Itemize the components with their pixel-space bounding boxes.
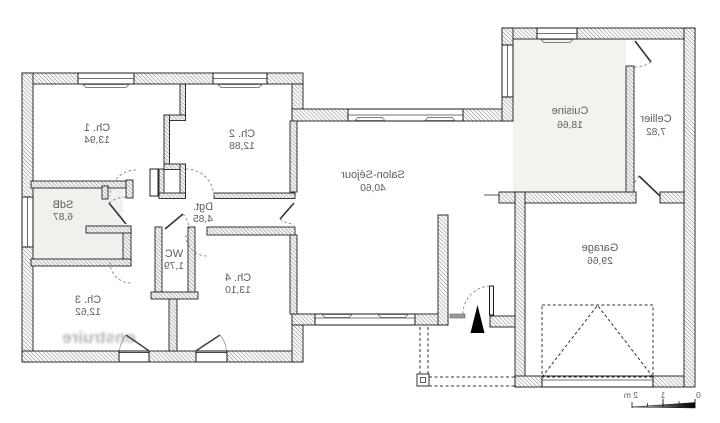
svg-text:29,66: 29,66: [587, 256, 613, 267]
svg-text:Cellier: Cellier: [640, 113, 672, 125]
svg-text:7,82: 7,82: [646, 127, 666, 138]
svg-text:onstruire: onstruire: [62, 328, 136, 347]
svg-text:Salon-Séjour: Salon-Séjour: [341, 169, 405, 181]
svg-text:1,79: 1,79: [164, 261, 184, 272]
svg-text:40,60: 40,60: [360, 183, 386, 194]
svg-text:Ch. 1: Ch. 1: [84, 122, 110, 134]
svg-text:13,10: 13,10: [225, 285, 251, 296]
svg-text:Ch. 2: Ch. 2: [229, 128, 255, 140]
svg-text:4,85: 4,85: [193, 214, 213, 225]
svg-text:Dgt.: Dgt.: [193, 201, 213, 213]
svg-text:Cuisine: Cuisine: [552, 105, 589, 117]
svg-text:WC: WC: [165, 248, 183, 260]
svg-text:1: 1: [660, 390, 665, 400]
svg-text:2 m: 2 m: [624, 390, 638, 400]
svg-text:Garage: Garage: [582, 242, 619, 254]
svg-text:12,62: 12,62: [75, 307, 101, 318]
svg-text:Ch. 4: Ch. 4: [225, 272, 251, 284]
svg-text:13,94: 13,94: [84, 135, 110, 146]
svg-text:12,88: 12,88: [229, 141, 255, 152]
svg-text:0: 0: [696, 390, 701, 400]
svg-text:Ch. 3: Ch. 3: [75, 294, 101, 306]
svg-text:18,66: 18,66: [557, 120, 583, 131]
svg-text:6,87: 6,87: [53, 212, 73, 223]
svg-text:SdB: SdB: [53, 199, 74, 211]
